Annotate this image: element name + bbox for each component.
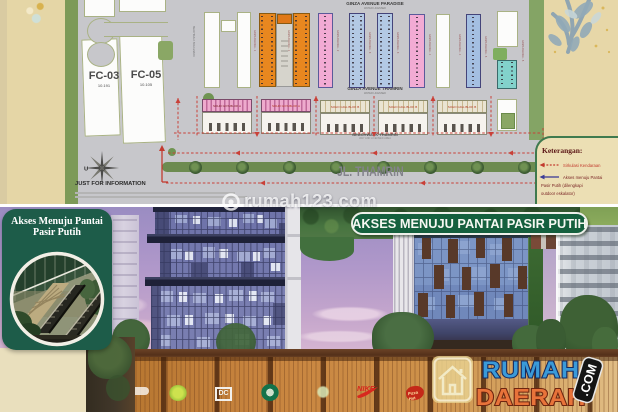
- svg-text:DAERAH: DAERAH: [476, 385, 586, 411]
- svg-text:Pasir Putih (dilengkapi: Pasir Putih (dilengkapi: [541, 183, 583, 188]
- svg-text:RUMAH: RUMAH: [482, 357, 580, 383]
- svg-text:outdoor eskalator): outdoor eskalator): [541, 191, 575, 196]
- svg-text:Sirkulasi Kendaraan: Sirkulasi Kendaraan: [563, 163, 601, 168]
- svg-text:Akses menuju Pantai: Akses menuju Pantai: [563, 175, 602, 180]
